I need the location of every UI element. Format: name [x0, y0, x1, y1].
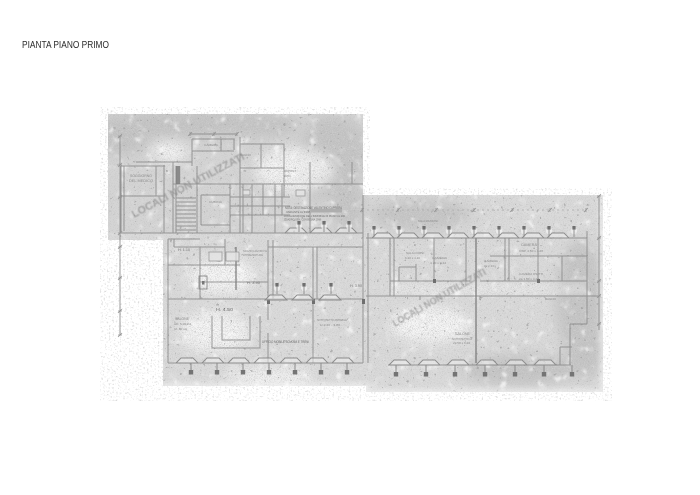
svg-text:CAMERA: CAMERA	[521, 243, 538, 247]
svg-text:SOGGIORNO: SOGGIORNO	[130, 174, 152, 178]
svg-text:RIPOST.: RIPOST.	[284, 169, 297, 173]
svg-text:QUADRO GEN. CONSEGNA 1998: QUADRO GEN. CONSEGNA 1998	[284, 218, 321, 222]
svg-text:SOTTOTETTO ABITABILE: SOTTOTETTO ABITABILE	[317, 318, 347, 322]
svg-text:SOTTOTETTO xx: SOTTOTETTO xx	[452, 337, 473, 341]
svg-text:CAMERA OSPITI: CAMERA OSPITI	[519, 272, 543, 276]
svg-text:H. 3.90: H. 3.90	[247, 281, 260, 285]
svg-text:4.20 x 3.44: 4.20 x 3.44	[430, 261, 447, 265]
svg-text:DEL MEDICO: DEL MEDICO	[129, 179, 153, 183]
svg-text:AD. 5.00 x 4.: AD. 5.00 x 4.	[174, 322, 192, 326]
svg-text:SALONE: SALONE	[455, 332, 470, 336]
svg-text:B: B	[166, 169, 168, 173]
svg-text:PIANTA PIANO PRIMO: PIANTA PIANO PRIMO	[22, 40, 109, 51]
svg-text:H. 1.10: H. 1.10	[178, 248, 190, 252]
svg-text:CAMERA: CAMERA	[432, 256, 447, 260]
svg-text:(2. 80 m): (2. 80 m)	[174, 327, 187, 331]
svg-text:H. 3.90: H. 3.90	[350, 284, 362, 288]
svg-text:SPAZIO LAVORO E: SPAZIO LAVORO E	[243, 249, 267, 253]
svg-text:CUCINA: CUCINA	[209, 200, 222, 204]
svg-text:BAGNO: BAGNO	[545, 297, 557, 301]
svg-text:CAMERA: CAMERA	[204, 143, 218, 147]
svg-text:WC: WC	[284, 174, 291, 178]
svg-text:H. 4.50: H. 4.50	[216, 307, 234, 312]
svg-text:3a 2.14 x: 3a 2.14 x	[484, 264, 497, 268]
svg-text:SALA CORSI: SALA CORSI	[406, 251, 424, 255]
svg-text:6.20 x 4.10: 6.20 x 4.10	[405, 256, 420, 260]
svg-text:H 2.20 - 3.80: H 2.20 - 3.80	[320, 323, 341, 327]
svg-text:ATTREZZATURE: ATTREZZATURE	[243, 253, 263, 257]
svg-text:SALA RIUNIONI: SALA RIUNIONI	[418, 219, 438, 223]
svg-text:UFFICIO MOBILE SCUOLA E TRENI: UFFICIO MOBILE SCUOLA E TRENI	[262, 340, 309, 344]
svg-text:OSP. 4.50 x 4.20: OSP. 4.50 x 4.20	[519, 249, 543, 253]
svg-text:2a 3.50 x 4.20: 2a 3.50 x 4.20	[519, 277, 539, 281]
svg-text:CAMERA: CAMERA	[484, 259, 498, 263]
svg-text:22.50 x 6.20: 22.50 x 6.20	[453, 341, 471, 345]
svg-text:SALONE: SALONE	[175, 317, 189, 321]
